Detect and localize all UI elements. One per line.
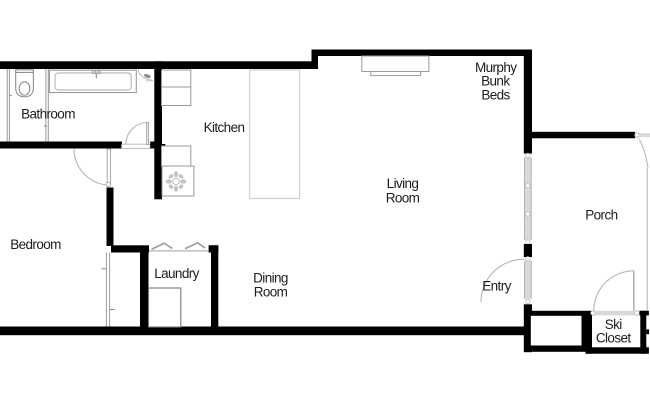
svg-text:Laundry: Laundry (154, 266, 199, 281)
svg-text:Dining: Dining (253, 271, 288, 286)
svg-text:Porch: Porch (585, 207, 617, 222)
svg-text:Closet: Closet (596, 331, 632, 346)
svg-text:Room: Room (386, 191, 420, 206)
svg-text:Beds: Beds (481, 87, 510, 102)
svg-text:Room: Room (254, 285, 288, 300)
svg-text:Bathroom: Bathroom (21, 106, 75, 121)
svg-text:Bedroom: Bedroom (10, 237, 61, 252)
svg-text:Entry: Entry (482, 278, 511, 293)
svg-text:Living: Living (387, 176, 419, 191)
svg-text:Kitchen: Kitchen (204, 120, 245, 135)
svg-text:Murphy: Murphy (475, 60, 517, 75)
